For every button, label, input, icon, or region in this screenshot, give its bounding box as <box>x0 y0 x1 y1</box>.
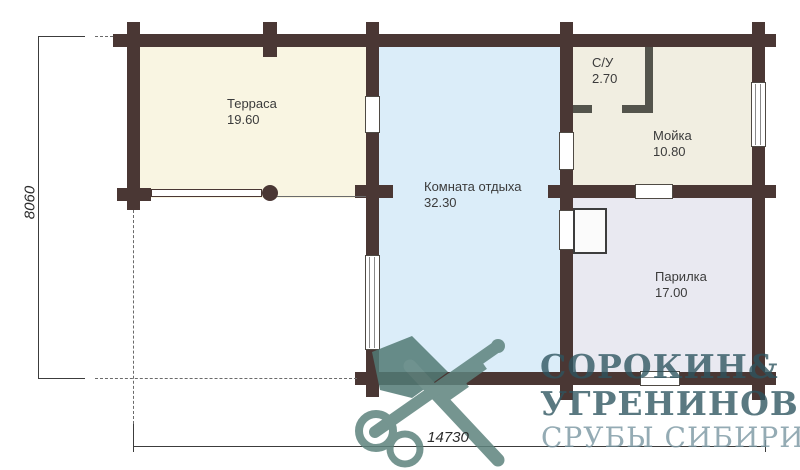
door-lounge-steam <box>559 210 574 250</box>
wall-terrace-left <box>127 22 140 210</box>
room-name: Терраса <box>227 96 277 112</box>
watermark-tagline: СРУБЫ СИБИРИ <box>541 421 800 454</box>
label-wc: С/У 2.70 <box>592 55 617 87</box>
dimension-tick-bottom <box>38 378 85 379</box>
dimension-tick-top <box>38 36 85 37</box>
room-name: С/У <box>592 55 617 71</box>
door-terrace-lounge <box>365 96 380 133</box>
window-lounge-left <box>365 255 380 350</box>
wc-partition-stub <box>573 105 592 113</box>
wc-partition-horizontal <box>622 105 653 113</box>
sauna-stove <box>573 208 607 254</box>
room-area: 19.60 <box>227 112 277 128</box>
log-joint-terrace-top <box>263 22 277 57</box>
room-area: 2.70 <box>592 71 617 87</box>
dimension-end-right <box>765 440 766 452</box>
label-terrace: Терраса 19.60 <box>227 96 277 128</box>
railing-post <box>262 185 278 201</box>
room-area: 32.30 <box>424 195 522 211</box>
log-joint-terrace-bottom <box>117 188 151 201</box>
terrace-railing <box>151 189 262 197</box>
window-steam-bottom <box>640 371 680 386</box>
door-washroom-steam <box>635 184 673 199</box>
dimension-end-left <box>133 424 134 452</box>
extension-dash-bottom <box>95 378 357 379</box>
extension-dash-top <box>95 36 113 37</box>
terrace-open-edge <box>277 196 366 197</box>
label-lounge: Комната отдыха 32.30 <box>424 179 522 211</box>
wall-top <box>113 34 776 47</box>
room-area: 17.00 <box>655 285 707 301</box>
wall-right <box>752 22 765 400</box>
label-steam: Парилка 17.00 <box>655 269 707 301</box>
room-area: 10.80 <box>653 144 692 160</box>
floor-plan: Терраса 19.60 Комната отдыха 32.30 С/У 2… <box>0 0 800 470</box>
extension-dash-left <box>133 210 134 424</box>
label-washroom: Мойка 10.80 <box>653 128 692 160</box>
room-name: Мойка <box>653 128 692 144</box>
width-dimension-value: 14730 <box>412 429 484 446</box>
room-name: Парилка <box>655 269 707 285</box>
door-lounge-washroom <box>559 132 574 170</box>
wc-partition-vertical <box>645 47 653 113</box>
window-washroom-right <box>751 82 766 147</box>
dimension-line-width <box>133 446 766 447</box>
room-name: Комната отдыха <box>424 179 522 195</box>
wall-main-bottom <box>355 372 776 385</box>
height-dimension-value: 8060 <box>22 173 39 233</box>
